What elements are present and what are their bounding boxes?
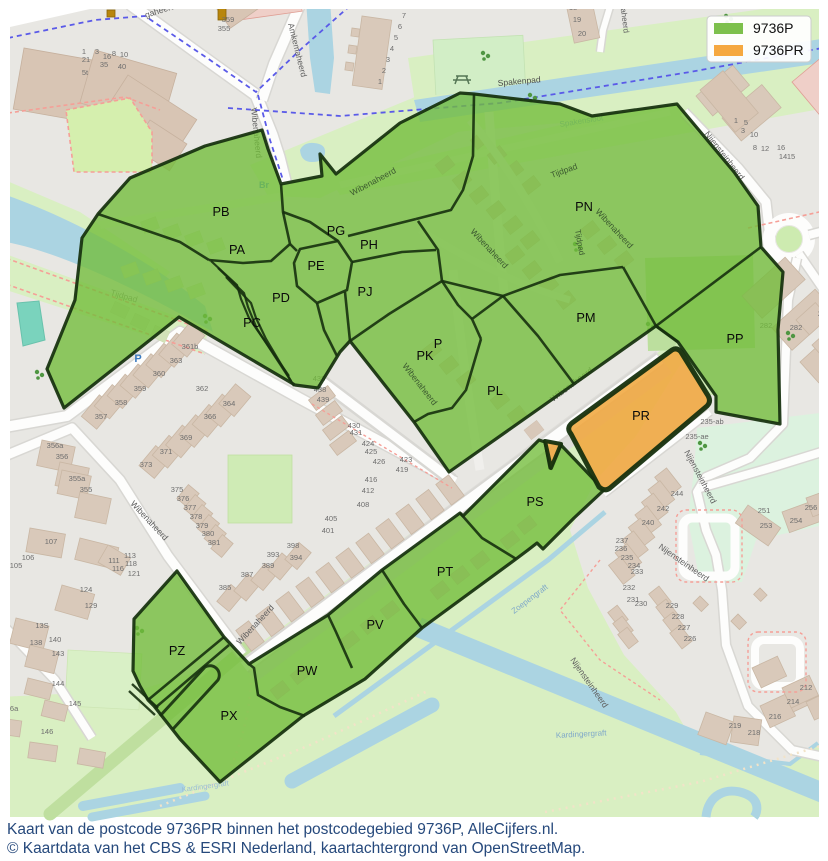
svg-text:10: 10 bbox=[750, 130, 758, 139]
svg-text:16: 16 bbox=[777, 143, 785, 152]
svg-text:229: 229 bbox=[666, 601, 679, 610]
svg-text:363: 363 bbox=[170, 356, 183, 365]
svg-text:145: 145 bbox=[69, 699, 82, 708]
svg-text:143: 143 bbox=[52, 649, 65, 658]
svg-text:233: 233 bbox=[631, 567, 644, 576]
svg-text:355: 355 bbox=[80, 485, 93, 494]
svg-text:387: 387 bbox=[241, 570, 254, 579]
svg-text:PL: PL bbox=[487, 383, 503, 398]
svg-text:40: 40 bbox=[118, 62, 126, 71]
svg-text:357: 357 bbox=[95, 412, 108, 421]
svg-text:375: 375 bbox=[171, 485, 184, 494]
svg-text:PG: PG bbox=[327, 223, 346, 238]
svg-text:7: 7 bbox=[402, 11, 406, 20]
svg-text:10: 10 bbox=[120, 50, 128, 59]
svg-text:PC: PC bbox=[243, 315, 261, 330]
svg-text:377: 377 bbox=[184, 503, 197, 512]
svg-text:8: 8 bbox=[112, 49, 116, 58]
svg-text:355a: 355a bbox=[69, 474, 87, 483]
svg-text:358: 358 bbox=[115, 398, 128, 407]
svg-text:431: 431 bbox=[350, 428, 363, 437]
svg-text:21: 21 bbox=[82, 55, 90, 64]
svg-text:230: 230 bbox=[635, 599, 648, 608]
svg-text:PK: PK bbox=[416, 348, 434, 363]
svg-text:4: 4 bbox=[390, 44, 394, 53]
svg-text:216: 216 bbox=[769, 712, 782, 721]
svg-text:242: 242 bbox=[657, 504, 670, 513]
svg-text:19: 19 bbox=[573, 15, 581, 24]
svg-text:12: 12 bbox=[761, 144, 769, 153]
svg-text:PE: PE bbox=[307, 258, 324, 273]
svg-text:3: 3 bbox=[386, 55, 390, 64]
svg-text:282: 282 bbox=[790, 323, 803, 332]
svg-text:412: 412 bbox=[362, 486, 375, 495]
svg-text:227: 227 bbox=[678, 623, 691, 632]
svg-text:359: 359 bbox=[134, 384, 147, 393]
svg-text:362: 362 bbox=[196, 384, 209, 393]
svg-text:393: 393 bbox=[267, 550, 280, 559]
svg-text:PX: PX bbox=[220, 708, 238, 723]
svg-text:PZ: PZ bbox=[169, 643, 186, 658]
svg-text:408: 408 bbox=[357, 500, 370, 509]
svg-text:© Kaartdata van het CBS & ESRI: © Kaartdata van het CBS & ESRI Nederland… bbox=[7, 840, 585, 857]
svg-text:228: 228 bbox=[672, 612, 685, 621]
svg-text:PN: PN bbox=[575, 199, 593, 214]
svg-text:3: 3 bbox=[741, 126, 745, 135]
svg-text:369: 369 bbox=[180, 433, 193, 442]
svg-text:140: 140 bbox=[49, 635, 62, 644]
svg-text:6: 6 bbox=[398, 22, 402, 31]
svg-text:226: 226 bbox=[684, 634, 697, 643]
svg-text:389: 389 bbox=[262, 561, 275, 570]
svg-text:9736PR: 9736PR bbox=[753, 42, 804, 58]
svg-text:244: 244 bbox=[671, 489, 684, 498]
svg-text:405: 405 bbox=[325, 514, 338, 523]
svg-text:218: 218 bbox=[748, 728, 761, 737]
svg-text:232: 232 bbox=[623, 583, 636, 592]
svg-text:401: 401 bbox=[322, 526, 335, 535]
svg-text:425: 425 bbox=[365, 447, 378, 456]
svg-text:236: 236 bbox=[615, 544, 628, 553]
svg-text:240: 240 bbox=[642, 518, 655, 527]
svg-text:13S: 13S bbox=[35, 621, 48, 630]
svg-text:PD: PD bbox=[272, 290, 290, 305]
svg-text:356a: 356a bbox=[47, 441, 65, 450]
svg-text:129: 129 bbox=[85, 601, 98, 610]
svg-text:394: 394 bbox=[290, 553, 303, 562]
svg-text:253: 253 bbox=[760, 521, 773, 530]
svg-text:PB: PB bbox=[212, 204, 229, 219]
svg-text:35: 35 bbox=[100, 60, 108, 69]
svg-text:381: 381 bbox=[208, 538, 221, 547]
svg-text:9736P: 9736P bbox=[753, 20, 793, 36]
svg-text:212: 212 bbox=[800, 683, 813, 692]
svg-text:1: 1 bbox=[378, 77, 382, 86]
svg-text:107: 107 bbox=[45, 537, 58, 546]
svg-text:PT: PT bbox=[437, 564, 454, 579]
svg-text:256: 256 bbox=[805, 503, 818, 512]
svg-text:1: 1 bbox=[734, 116, 738, 125]
svg-text:PM: PM bbox=[576, 310, 595, 325]
svg-text:5t: 5t bbox=[82, 68, 89, 77]
svg-text:426: 426 bbox=[373, 457, 386, 466]
svg-text:364: 364 bbox=[223, 399, 236, 408]
svg-text:105: 105 bbox=[10, 561, 23, 570]
svg-text:376: 376 bbox=[177, 494, 190, 503]
svg-text:380: 380 bbox=[202, 529, 215, 538]
svg-text:355: 355 bbox=[218, 24, 231, 33]
svg-text:366: 366 bbox=[204, 412, 217, 421]
svg-text:3: 3 bbox=[95, 47, 99, 56]
svg-text:124: 124 bbox=[80, 585, 93, 594]
svg-text:235-ae: 235-ae bbox=[685, 432, 708, 441]
svg-text:PS: PS bbox=[526, 494, 543, 509]
svg-text:5: 5 bbox=[394, 33, 398, 42]
svg-text:PP: PP bbox=[726, 331, 743, 346]
svg-text:423: 423 bbox=[400, 455, 413, 464]
svg-text:398: 398 bbox=[287, 541, 300, 550]
svg-text:385: 385 bbox=[219, 583, 232, 592]
svg-text:214: 214 bbox=[787, 697, 800, 706]
svg-text:254: 254 bbox=[790, 516, 803, 525]
svg-text:361b: 361b bbox=[182, 342, 199, 351]
svg-text:PH: PH bbox=[360, 237, 378, 252]
svg-text:2: 2 bbox=[382, 66, 386, 75]
svg-text:416: 416 bbox=[365, 475, 378, 484]
svg-text:419: 419 bbox=[396, 465, 409, 474]
svg-text:251: 251 bbox=[758, 506, 771, 515]
svg-text:P: P bbox=[134, 353, 141, 365]
svg-text:8: 8 bbox=[753, 143, 757, 152]
svg-text:360: 360 bbox=[153, 369, 166, 378]
svg-text:PW: PW bbox=[297, 663, 319, 678]
svg-text:118: 118 bbox=[125, 559, 137, 568]
svg-text:PV: PV bbox=[366, 617, 384, 632]
svg-text:235-ab: 235-ab bbox=[700, 417, 723, 426]
svg-text:PR: PR bbox=[632, 408, 650, 423]
svg-text:146: 146 bbox=[41, 727, 54, 736]
svg-text:371: 371 bbox=[160, 447, 173, 456]
svg-text:106: 106 bbox=[22, 553, 35, 562]
svg-text:15: 15 bbox=[787, 152, 795, 161]
svg-text:373: 373 bbox=[140, 460, 153, 469]
svg-text:439: 439 bbox=[317, 395, 330, 404]
svg-text:219: 219 bbox=[729, 721, 742, 730]
svg-text:144: 144 bbox=[52, 679, 65, 688]
svg-text:P: P bbox=[434, 336, 443, 351]
svg-text:20: 20 bbox=[578, 29, 586, 38]
svg-text:121: 121 bbox=[128, 569, 141, 578]
svg-text:138: 138 bbox=[30, 638, 43, 647]
svg-text:356: 356 bbox=[56, 452, 69, 461]
svg-text:359: 359 bbox=[222, 15, 235, 24]
svg-text:116: 116 bbox=[112, 564, 124, 573]
svg-text:378: 378 bbox=[190, 512, 203, 521]
svg-text:Kaart van de postcode 9736PR b: Kaart van de postcode 9736PR binnen het … bbox=[7, 821, 558, 838]
svg-text:PA: PA bbox=[229, 242, 246, 257]
svg-text:PJ: PJ bbox=[358, 284, 373, 299]
